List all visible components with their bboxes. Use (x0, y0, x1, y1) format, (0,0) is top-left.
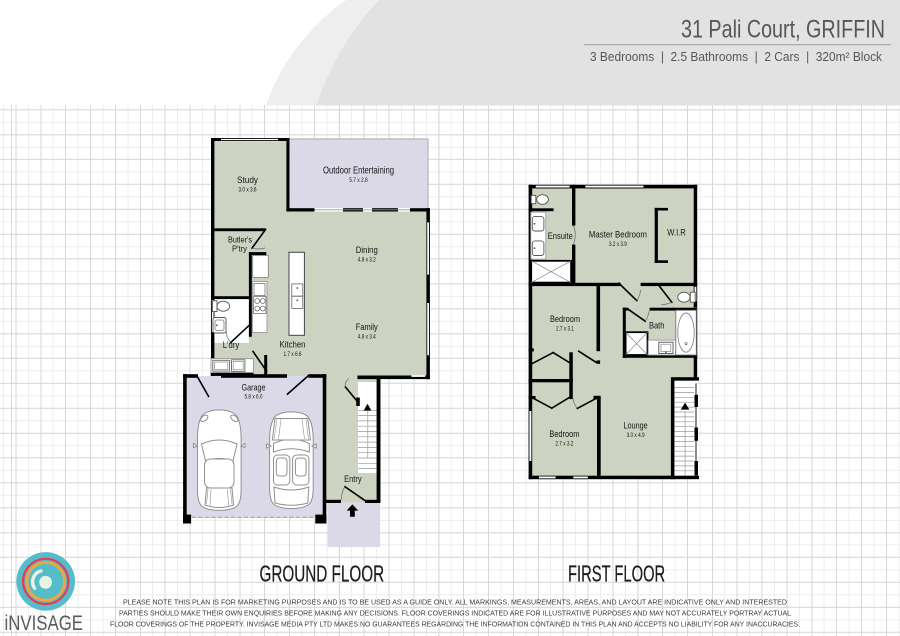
svg-text:Study: Study (237, 175, 258, 185)
svg-text:L'dry: L'dry (223, 340, 240, 350)
svg-text:3.0 x 4.9: 3.0 x 4.9 (627, 432, 645, 439)
svg-text:PARTIES SHOULD MAKE THEIR OWN: PARTIES SHOULD MAKE THEIR OWN ENQUIRIES … (119, 609, 791, 618)
svg-text:1.7 x 6.6: 1.7 x 6.6 (284, 351, 302, 358)
svg-text:2.7 x 3.2: 2.7 x 3.2 (555, 441, 573, 448)
svg-text:5.7 x 2.8: 5.7 x 2.8 (349, 177, 368, 184)
svg-text:Bedroom: Bedroom (550, 314, 580, 324)
svg-text:GROUND FLOOR: GROUND FLOOR (259, 561, 384, 587)
svg-text:Lounge: Lounge (624, 421, 648, 431)
svg-text:4.8 x 3.4: 4.8 x 3.4 (358, 334, 376, 341)
svg-text:Dining: Dining (356, 245, 378, 255)
svg-text:Outdoor Entertaining: Outdoor Entertaining (323, 166, 394, 177)
svg-text:Master Bedroom: Master Bedroom (589, 230, 647, 240)
svg-text:2.7 x 3.1: 2.7 x 3.1 (556, 326, 574, 333)
svg-text:W.I.R: W.I.R (667, 228, 686, 238)
svg-text:Kitchen: Kitchen (280, 340, 306, 350)
svg-text:4.8 x 3.2: 4.8 x 3.2 (358, 257, 376, 264)
svg-text:Garage: Garage (242, 383, 266, 393)
svg-text:Ensuite: Ensuite (548, 231, 573, 241)
svg-text:3.2 x 3.9: 3.2 x 3.9 (609, 241, 627, 248)
svg-text:PLEASE NOTE THIS PLAN IS FOR M: PLEASE NOTE THIS PLAN IS FOR MARKETING P… (123, 598, 788, 607)
svg-text:31 Pali Court, GRIFFIN: 31 Pali Court, GRIFFIN (681, 16, 885, 44)
svg-text:3.0 x 3.6: 3.0 x 3.6 (239, 187, 257, 194)
svg-text:Entry: Entry (344, 474, 362, 484)
svg-text:P'try: P'try (232, 244, 248, 254)
svg-text:FLOOR COVERINGS OF THE PROPERT: FLOOR COVERINGS OF THE PROPERTY. INVISAG… (110, 620, 800, 629)
svg-text:FIRST FLOOR: FIRST FLOOR (568, 561, 665, 587)
svg-text:5.8 x 6.0: 5.8 x 6.0 (245, 394, 263, 401)
svg-text:iNVISAGE: iNVISAGE (5, 612, 84, 635)
svg-text:Family: Family (356, 322, 378, 332)
svg-text:3 Bedrooms | 2.5 Bathrooms: 3 Bedrooms | 2.5 Bathrooms | 2 Cars | 32… (590, 49, 882, 64)
svg-text:Bath: Bath (649, 321, 665, 331)
svg-text:Bedroom: Bedroom (549, 429, 579, 439)
